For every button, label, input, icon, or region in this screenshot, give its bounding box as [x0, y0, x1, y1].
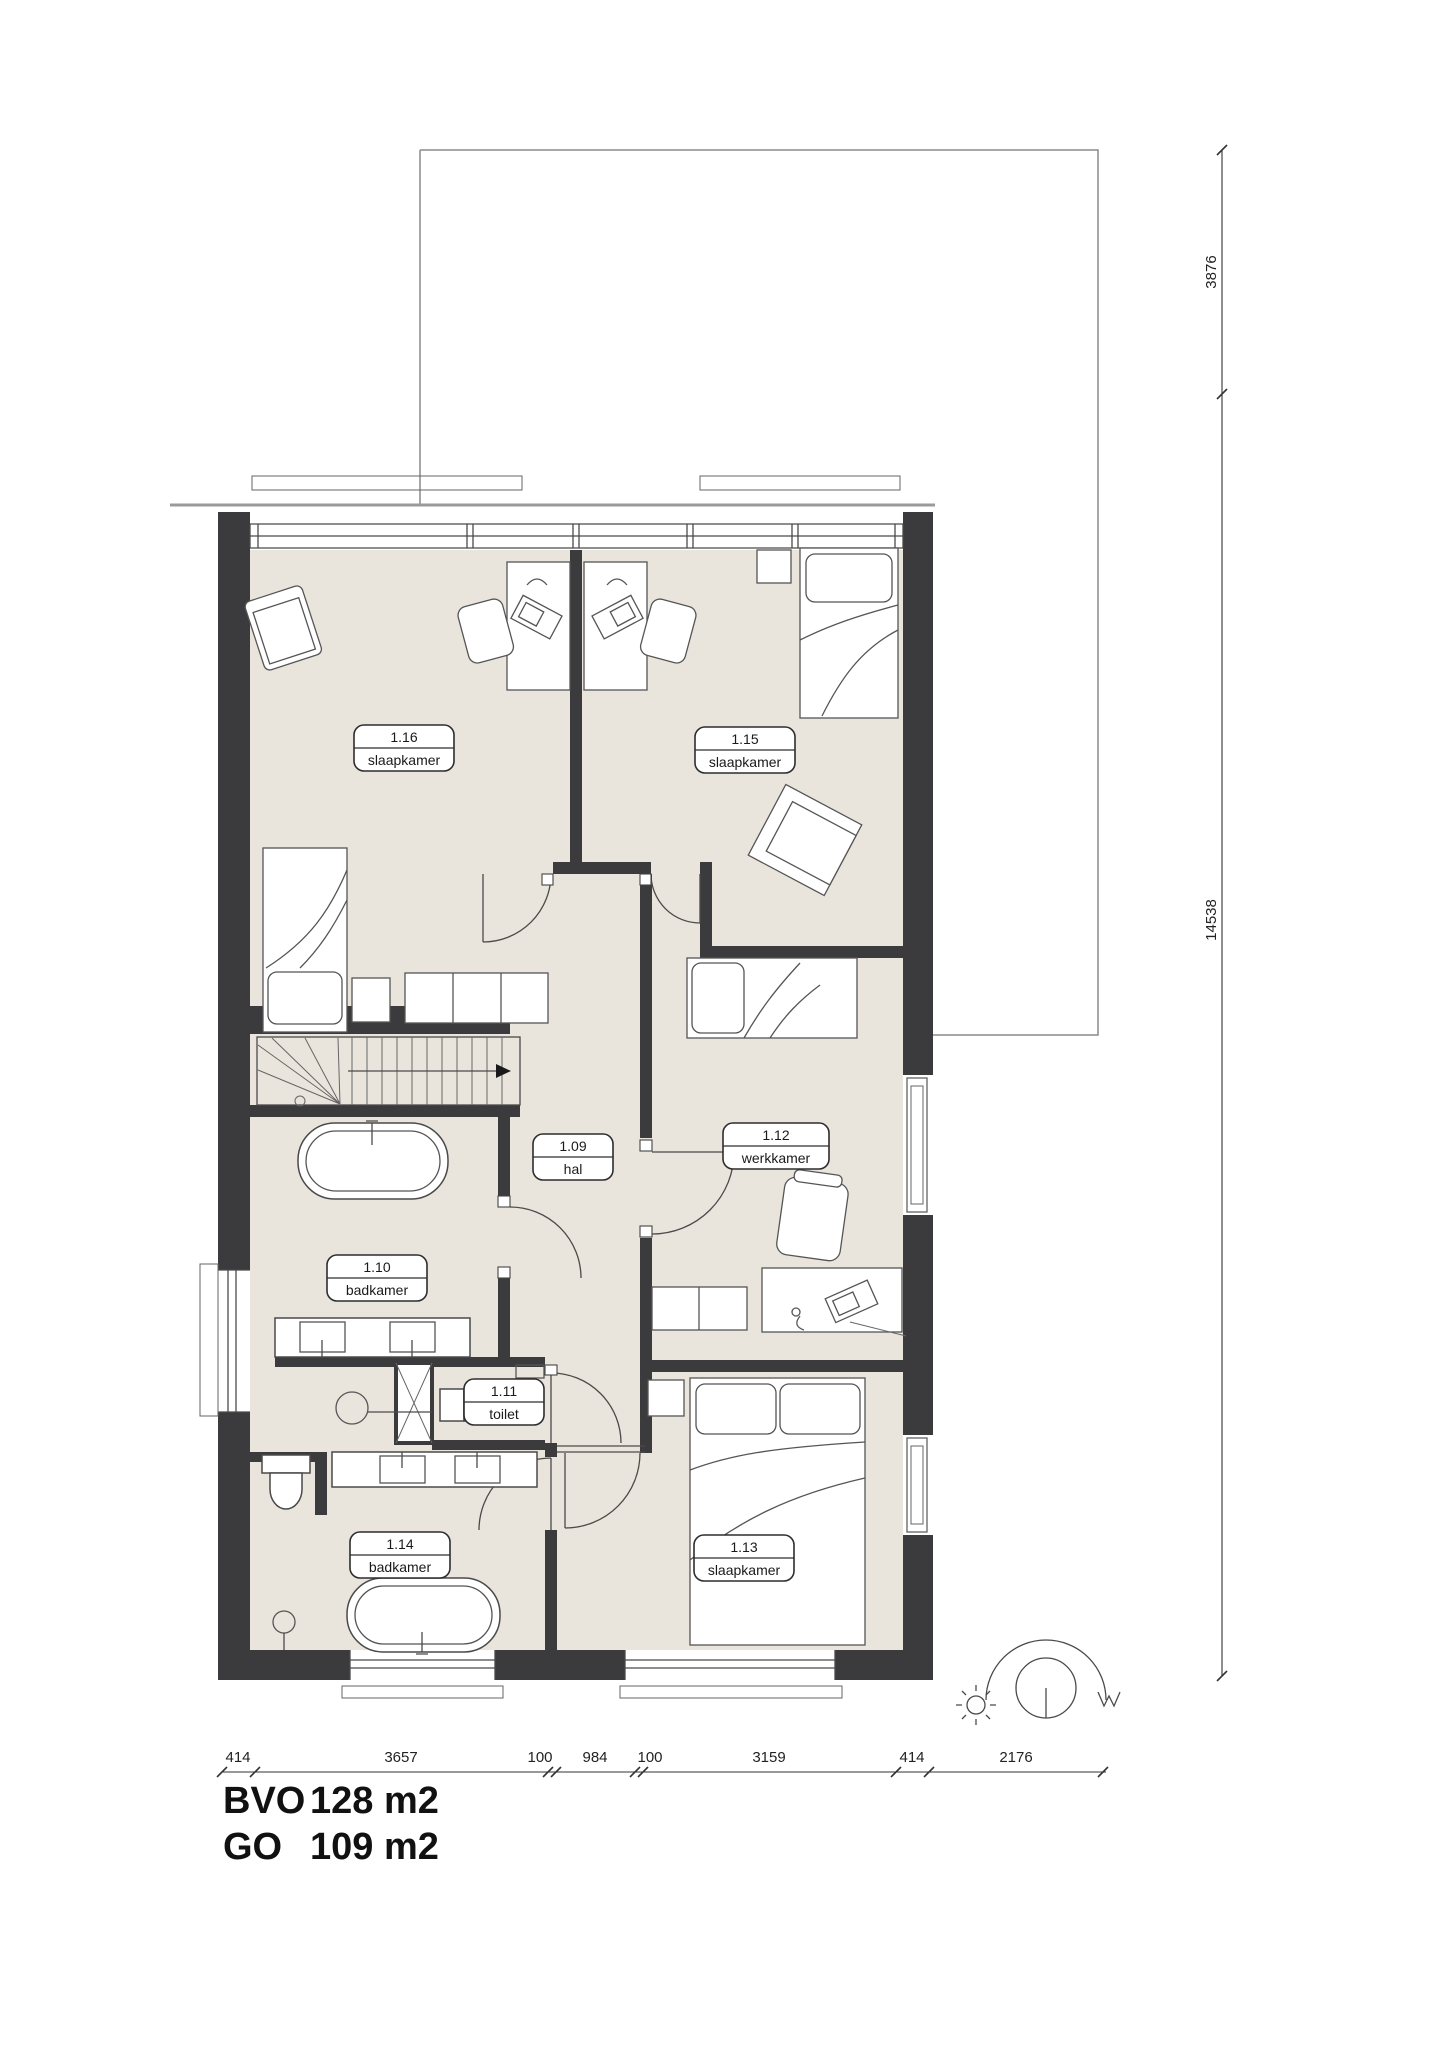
nightstand-116 — [352, 978, 390, 1022]
chair-112 — [775, 1168, 850, 1262]
room-label-116: 1.16 slaapkamer — [354, 725, 454, 771]
room-label-111: 1.11 toilet — [464, 1379, 544, 1425]
sun-icon — [956, 1685, 996, 1725]
room-label-114: 1.14 badkamer — [350, 1532, 450, 1578]
west-arrow — [1098, 1692, 1120, 1706]
room-name: slaapkamer — [368, 752, 441, 768]
dim-bottom-4: 100 — [637, 1749, 662, 1766]
dimension-bottom: 414 3657 100 984 100 3159 414 2176 — [217, 1749, 1108, 1777]
dim-bottom-7: 2176 — [999, 1749, 1032, 1766]
dim-bottom-1: 3657 — [384, 1749, 417, 1766]
dim-bottom-3: 984 — [582, 1749, 607, 1766]
floorplan-page: 1.16 slaapkamer 1.15 slaapkamer 1.09 hal… — [0, 0, 1447, 2048]
area-summary: BVO 128 m2 GO 109 m2 — [223, 1780, 439, 1868]
room-name: badkamer — [346, 1282, 409, 1298]
bed-112 — [687, 958, 857, 1038]
vanity-114 — [332, 1452, 537, 1487]
bvo-label: BVO — [223, 1780, 305, 1822]
dim-right-1: 14538 — [1203, 899, 1220, 941]
room-label-109: 1.09 hal — [533, 1134, 613, 1180]
room-number: 1.11 — [491, 1383, 517, 1399]
dim-bottom-2: 100 — [527, 1749, 552, 1766]
cabinet-112 — [652, 1287, 747, 1330]
window-werkkamer — [903, 1075, 933, 1215]
window-bottom-slaapkamer — [620, 1650, 842, 1698]
bvo-value: 128 m2 — [310, 1780, 439, 1822]
room-label-110: 1.10 badkamer — [327, 1255, 427, 1301]
room-label-115: 1.15 slaapkamer — [695, 727, 795, 773]
window-left — [200, 1264, 250, 1416]
room-number: 1.10 — [363, 1259, 390, 1275]
room-name: badkamer — [369, 1559, 432, 1575]
balustrade-right — [700, 476, 900, 490]
nightstand-115 — [757, 550, 791, 583]
room-name: slaapkamer — [708, 1562, 781, 1578]
room-name: werkkamer — [741, 1150, 811, 1166]
room-name: hal — [564, 1161, 583, 1177]
sun-orientation-icon — [956, 1640, 1120, 1725]
balustrade-left — [252, 476, 522, 490]
nightstand-113 — [648, 1380, 684, 1416]
dresser-116 — [405, 973, 548, 1023]
room-number: 1.13 — [730, 1539, 757, 1555]
room-label-113: 1.13 slaapkamer — [694, 1535, 794, 1581]
bathtub-114 — [347, 1578, 500, 1654]
go-label: GO — [223, 1826, 282, 1868]
window-bottom-badkamer — [342, 1650, 503, 1698]
dim-bottom-6: 414 — [899, 1749, 924, 1766]
room-number: 1.16 — [390, 729, 417, 745]
room-number: 1.14 — [386, 1536, 413, 1552]
dim-bottom-5: 3159 — [752, 1749, 785, 1766]
room-number: 1.09 — [559, 1138, 586, 1154]
room-number: 1.15 — [731, 731, 758, 747]
dim-right-0: 3876 — [1203, 255, 1220, 288]
bathtub-110 — [298, 1121, 448, 1199]
go-value: 109 m2 — [310, 1826, 439, 1868]
dimension-right: 3876 14538 — [1203, 145, 1227, 1681]
room-name: slaapkamer — [709, 754, 782, 770]
vanity-110 — [275, 1318, 470, 1357]
window-slaapkamer-right — [903, 1435, 933, 1535]
dim-bottom-0: 414 — [225, 1749, 250, 1766]
floorplan-drawing: 1.16 slaapkamer 1.15 slaapkamer 1.09 hal… — [0, 0, 1447, 2048]
room-number: 1.12 — [762, 1127, 789, 1143]
room-name: toilet — [489, 1406, 519, 1422]
room-label-112: 1.12 werkkamer — [723, 1123, 829, 1169]
